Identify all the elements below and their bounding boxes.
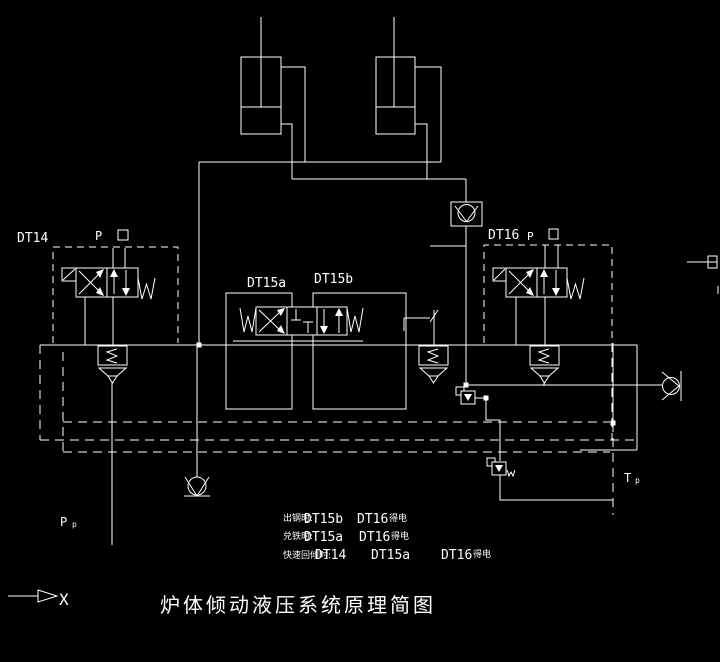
- drain-line: [456, 343, 662, 515]
- legend-row2-code1: DT15a: [304, 530, 343, 545]
- spring-icon: [240, 308, 256, 332]
- p-port-label-right: P: [527, 230, 534, 243]
- legend-row1-suffix: 得电: [389, 512, 407, 524]
- drawing-title: 炉体倾动液压系统原理简图: [160, 593, 436, 617]
- legend-row3-code3: DT16: [441, 548, 472, 563]
- dt15b-label: DT15b: [314, 272, 353, 287]
- valve-dt15: [226, 293, 406, 409]
- edge-connector: [687, 256, 718, 294]
- pilot-valve-icon: [456, 387, 475, 404]
- axis-x-label: X: [59, 590, 69, 609]
- axis-arrow: X: [8, 590, 69, 609]
- relief-valve-center: [404, 310, 448, 383]
- dt14-label: DT14: [17, 231, 48, 246]
- pilot-valve-icon: [487, 458, 515, 476]
- schematic-canvas: DT14 P DT15a DT15b DT16 P P p T p 出钢时: D…: [0, 0, 720, 662]
- cylinder-left: [241, 17, 305, 179]
- legend-row3-suffix: 得电: [473, 548, 491, 560]
- svg-text:p: p: [635, 476, 640, 485]
- check-valve-bottom-left: [184, 343, 210, 497]
- spring-icon: [347, 308, 363, 332]
- legend: 出钢时: DT15b DT16 得电 兑铁时: DT15a DT16 得电 快速…: [283, 512, 491, 563]
- relief-valve-right: [530, 346, 559, 386]
- legend-row3-code2: DT15a: [371, 548, 410, 563]
- dt15a-label: DT15a: [247, 276, 286, 291]
- svg-text:p: p: [72, 520, 77, 529]
- svg-text:P: P: [60, 515, 67, 529]
- valve-dt14: [53, 247, 178, 346]
- tank-port-label: T p: [624, 471, 640, 485]
- port-box-symbol: [549, 229, 558, 239]
- svg-text:T: T: [624, 471, 631, 485]
- legend-row2-code2: DT16: [359, 530, 390, 545]
- legend-row1-code2: DT16: [357, 512, 388, 527]
- dt16-label: DT16: [488, 228, 519, 243]
- spring-icon: [567, 278, 584, 299]
- solenoid-icon: [62, 268, 76, 281]
- cylinder-right: [376, 17, 441, 179]
- check-valve-right: [662, 371, 681, 401]
- solenoid-icon: [493, 268, 506, 281]
- spring-icon: [138, 278, 155, 299]
- relief-valve-left: [98, 346, 127, 545]
- p-port-label-left: P: [95, 229, 102, 243]
- legend-row3-code1: DT14: [315, 548, 346, 563]
- pump-port-label: P p: [60, 515, 77, 529]
- arrow-head-icon: [38, 590, 57, 602]
- port-box-symbol: [118, 230, 128, 240]
- legend-row1-code1: DT15b: [304, 512, 343, 527]
- legend-row2-suffix: 得电: [391, 530, 409, 542]
- valve-dt16: [484, 245, 612, 346]
